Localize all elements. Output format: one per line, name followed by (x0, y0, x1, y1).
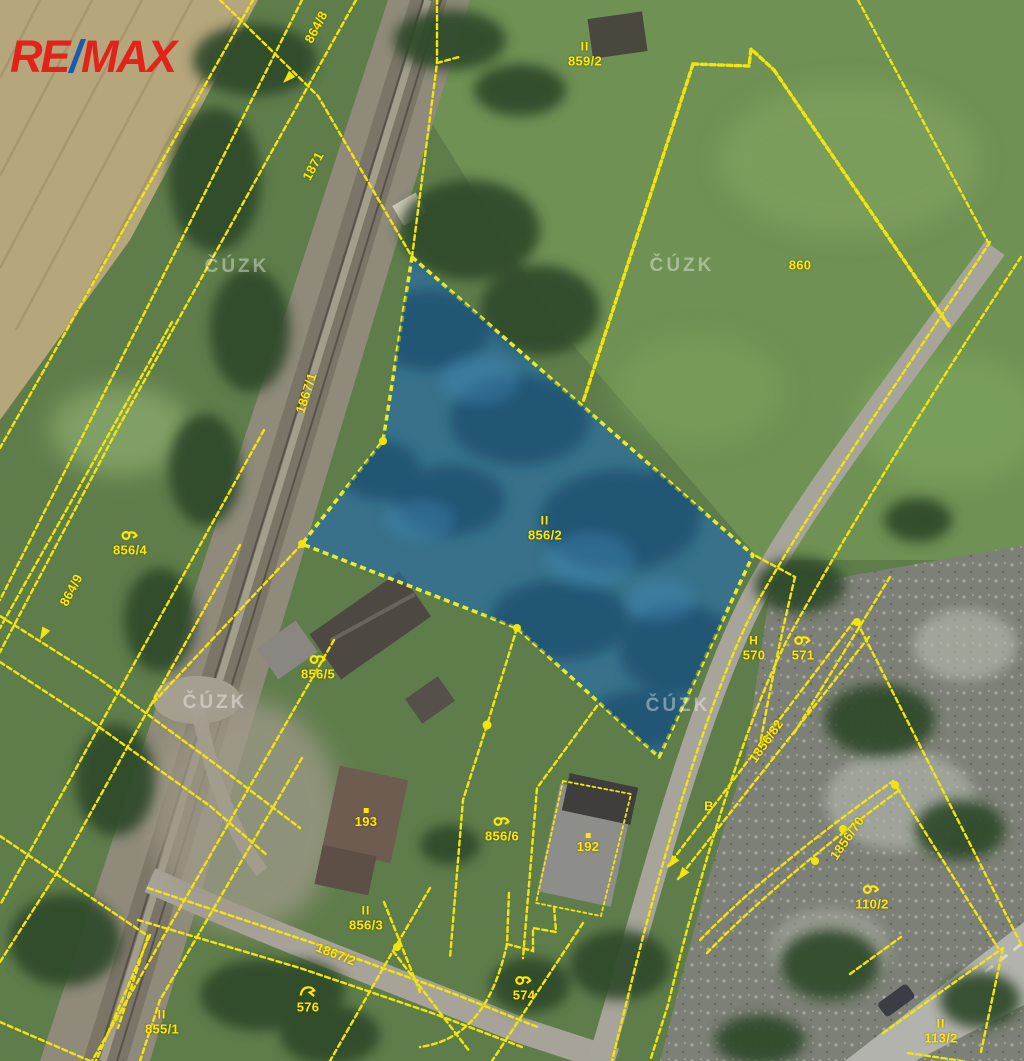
building-hut (587, 11, 647, 58)
logo-re: RE (10, 31, 69, 82)
remax-logo: RE/MAX (10, 34, 175, 79)
logo-max: MAX (81, 31, 175, 82)
cadastral-map: II859/2860II856/2856/4856/5193856/6192II… (0, 0, 1024, 1061)
satellite-image (0, 0, 1024, 1061)
logo-slash: / (69, 31, 82, 82)
yard (150, 700, 340, 930)
